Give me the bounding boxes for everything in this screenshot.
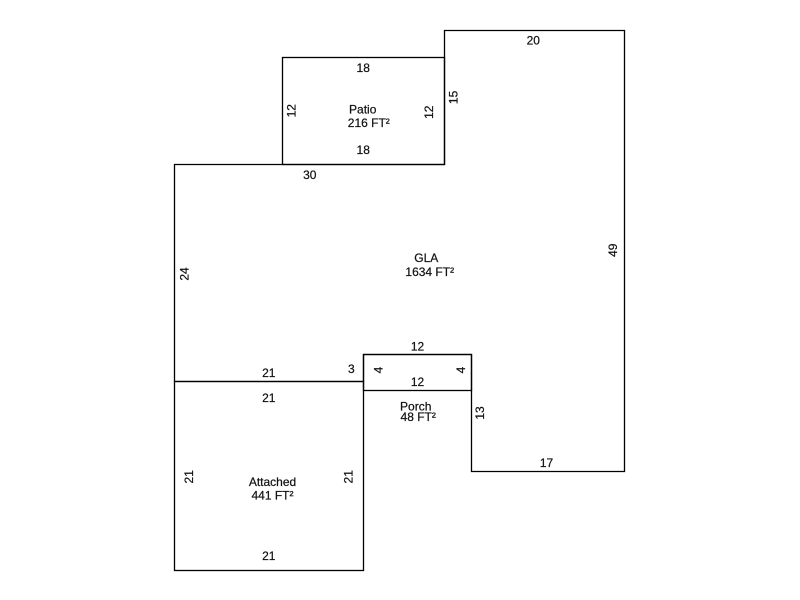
- svg-text:GLA: GLA: [414, 251, 438, 265]
- svg-text:49: 49: [606, 243, 620, 257]
- svg-text:12: 12: [284, 104, 298, 118]
- svg-text:21: 21: [182, 470, 196, 484]
- svg-text:12: 12: [422, 105, 436, 119]
- svg-text:17: 17: [540, 456, 554, 470]
- svg-text:4: 4: [372, 366, 386, 373]
- svg-text:24: 24: [178, 267, 192, 281]
- svg-text:21: 21: [341, 470, 355, 484]
- svg-text:18: 18: [357, 61, 371, 75]
- svg-text:21: 21: [262, 366, 276, 380]
- svg-text:13: 13: [473, 406, 487, 420]
- svg-text:15: 15: [446, 90, 460, 104]
- svg-text:21: 21: [262, 391, 276, 405]
- svg-text:Patio: Patio: [349, 103, 377, 117]
- svg-text:30: 30: [303, 168, 317, 182]
- svg-text:Attached: Attached: [249, 475, 296, 489]
- svg-text:3: 3: [348, 362, 355, 376]
- svg-text:20: 20: [527, 34, 541, 48]
- svg-text:216 FT²: 216 FT²: [348, 116, 390, 130]
- svg-text:1634 FT²: 1634 FT²: [405, 265, 454, 279]
- svg-text:12: 12: [411, 340, 425, 354]
- svg-text:12: 12: [411, 375, 425, 389]
- svg-text:441 FT²: 441 FT²: [251, 489, 293, 503]
- svg-text:21: 21: [262, 549, 276, 563]
- svg-text:18: 18: [357, 143, 371, 157]
- svg-text:4: 4: [454, 366, 468, 373]
- svg-text:48 FT²: 48 FT²: [401, 410, 436, 424]
